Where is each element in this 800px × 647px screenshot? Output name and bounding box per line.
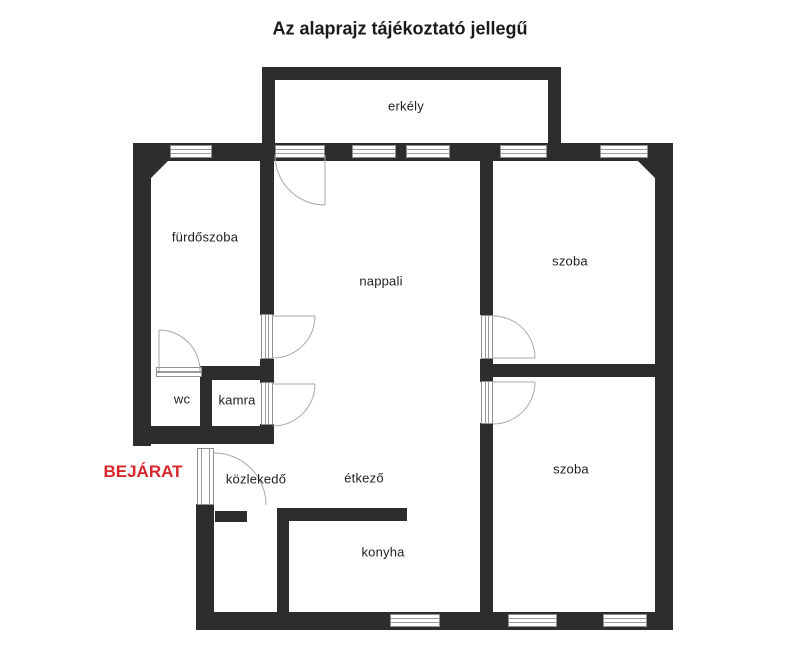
floorplan-canvas: Az alaprajz tájékoztató jellegű: [0, 0, 800, 647]
pantry-door-frame: [261, 382, 273, 425]
wall-segment: [548, 67, 561, 147]
wall-segment: [260, 161, 274, 315]
room-label-hallway: közlekedő: [226, 472, 286, 487]
window-symbol: [390, 614, 440, 627]
room-label-room-bottom: szoba: [553, 462, 589, 477]
room-top-door-frame: [481, 315, 493, 359]
wall-segment: [277, 508, 407, 521]
wall-segment: [133, 426, 274, 444]
wall-segment: [215, 511, 247, 522]
wall-segment: [480, 161, 493, 315]
window-symbol: [500, 145, 547, 158]
room-label-dining: étkező: [344, 471, 384, 486]
room-label-living-room: nappali: [359, 274, 402, 289]
room-label-balcony: erkély: [388, 99, 424, 114]
balcony-door-glazing: [275, 145, 325, 158]
wall-segment: [262, 67, 561, 80]
wall-corner-bevel: [151, 161, 168, 178]
door-arc: [493, 382, 535, 424]
wall-segment: [262, 67, 275, 147]
bathroom-door-frame: [261, 314, 273, 359]
wall-segment: [196, 504, 214, 614]
wall-segment: [200, 374, 212, 428]
window-symbol: [603, 614, 647, 627]
wc-door-frame: [156, 367, 202, 377]
wall-segment: [480, 423, 493, 612]
wall-segment: [260, 424, 274, 434]
door-arc: [493, 316, 535, 358]
plan-title: Az alaprajz tájékoztató jellegű: [272, 19, 527, 40]
room-label-room-top: szoba: [552, 254, 588, 269]
wall-segment: [655, 143, 673, 625]
window-symbol: [508, 614, 557, 627]
window-symbol: [406, 145, 450, 158]
door-arc: [159, 330, 200, 371]
window-symbol: [352, 145, 396, 158]
room-label-pantry: kamra: [218, 393, 255, 408]
wall-segment: [133, 143, 673, 161]
window-symbol: [170, 145, 212, 158]
door-arc: [273, 384, 315, 426]
wall-segment: [133, 143, 151, 446]
room-label-wc: wc: [174, 392, 190, 407]
entrance-label: BEJÁRAT: [103, 462, 182, 482]
room-label-bathroom: fürdőszoba: [172, 230, 238, 245]
window-symbol: [600, 145, 648, 158]
door-arc: [273, 316, 315, 358]
wall-segment: [277, 508, 289, 612]
door-arc: [275, 155, 325, 205]
wall-corner-bevel: [638, 161, 655, 178]
room-label-kitchen: konyha: [361, 545, 404, 560]
room-bottom-door-frame: [481, 381, 493, 424]
wall-segment: [480, 364, 657, 377]
entrance-door-frame: [197, 448, 214, 505]
